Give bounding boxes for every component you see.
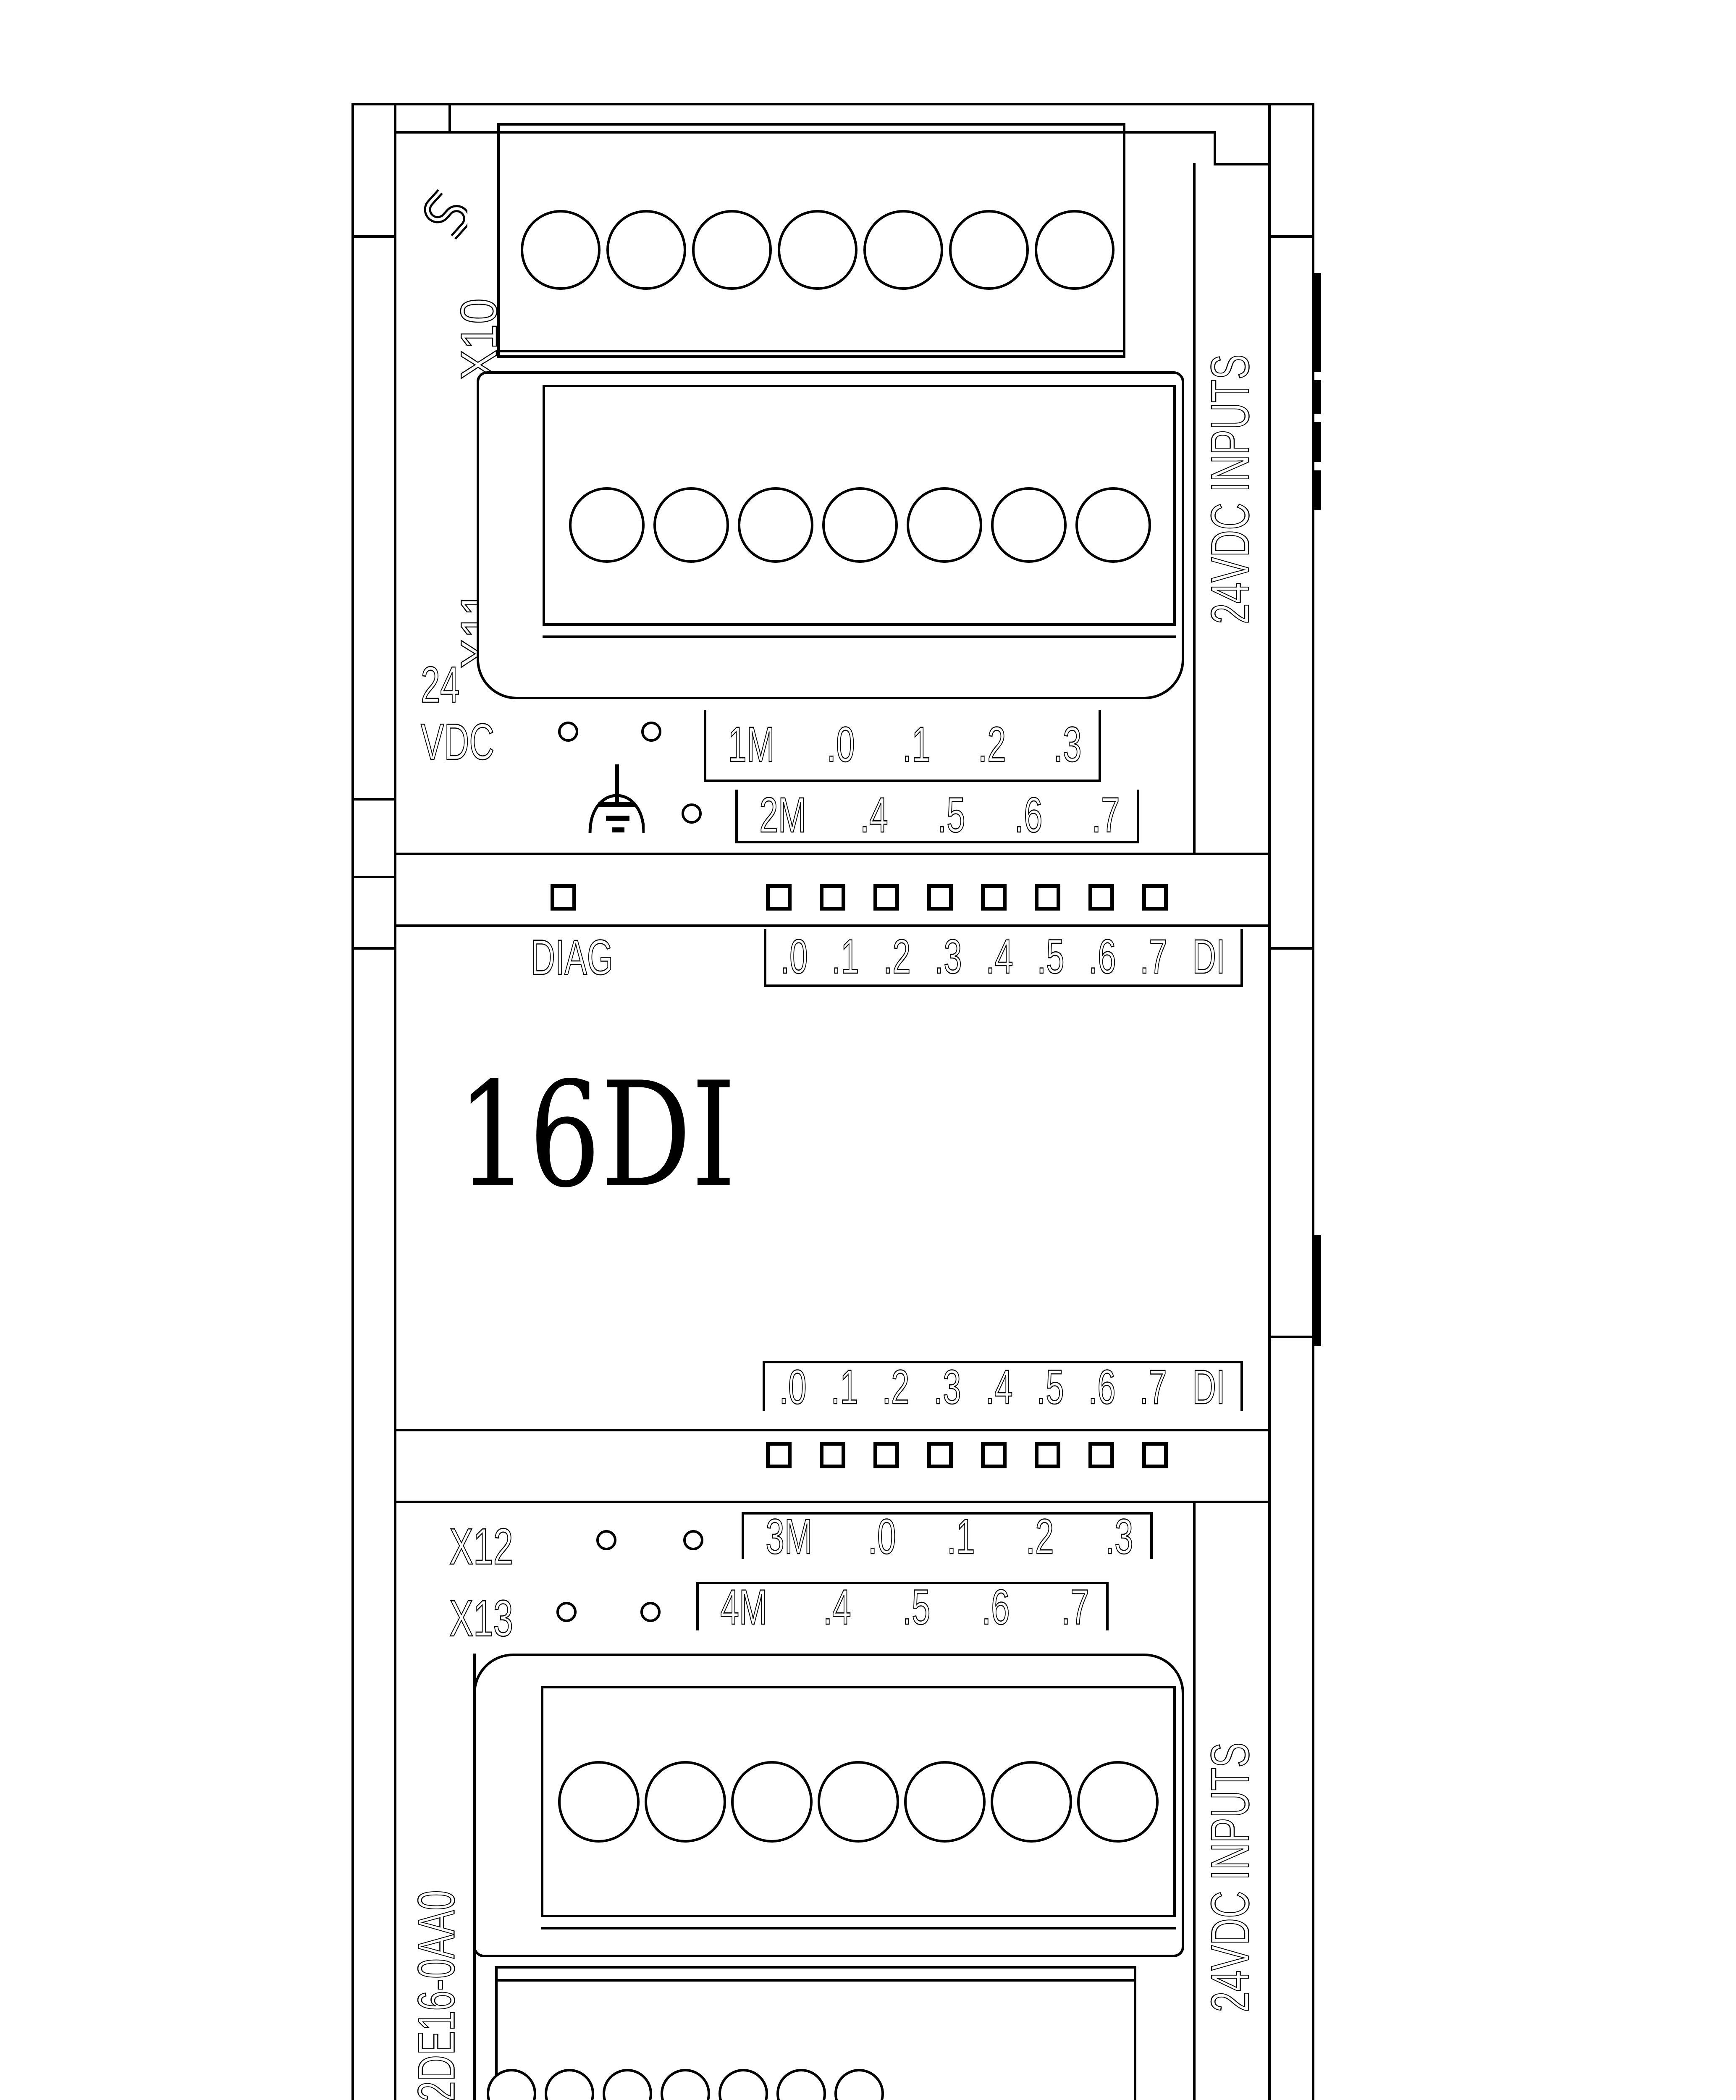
wiring-label: .1 bbox=[902, 716, 930, 773]
terminal-circle bbox=[1077, 1761, 1159, 1843]
di-group-label: DI bbox=[1192, 1360, 1225, 1415]
input-led bbox=[981, 884, 1007, 911]
terminal-circle bbox=[719, 2069, 768, 2100]
terminal-circle bbox=[731, 1761, 813, 1843]
di-label-row-top: .0 .1 .2 .3 .4 .5 .6 .7 DI bbox=[764, 929, 1243, 987]
di-bit-label: .5 bbox=[1036, 1360, 1064, 1415]
input-led bbox=[1142, 884, 1168, 911]
di-bit-label: .2 bbox=[883, 929, 910, 984]
left-rail bbox=[351, 103, 396, 2100]
wiring-label: .3 bbox=[1053, 716, 1081, 773]
terminal-circle bbox=[1075, 487, 1151, 563]
di-bit-label: .2 bbox=[882, 1360, 910, 1415]
terminal-circle bbox=[818, 1761, 899, 1843]
side-column-line-top bbox=[1193, 163, 1196, 853]
right-rail bbox=[1268, 103, 1314, 2100]
input-led bbox=[766, 884, 792, 911]
wiring-bracket-1m: 1M .0 .1 .2 .3 bbox=[704, 710, 1101, 782]
terminal-block-x13-inner-line bbox=[495, 1979, 1136, 1982]
left-rail-division bbox=[351, 947, 396, 950]
input-led bbox=[873, 1442, 899, 1468]
indicator-circle bbox=[683, 1530, 703, 1550]
terminal-circle bbox=[778, 210, 858, 290]
terminal-circle bbox=[991, 1761, 1072, 1843]
divider-line bbox=[396, 1429, 1268, 1431]
order-number-label: 288-2DE16-0AA0 bbox=[407, 1890, 467, 2100]
indicator-circle bbox=[596, 1530, 616, 1550]
terminal-circle bbox=[653, 487, 729, 563]
di-bit-label: .7 bbox=[1140, 1360, 1167, 1415]
wiring-bracket-4m: 4M .4 .5 .6 .7 bbox=[696, 1582, 1109, 1630]
terminal-circle bbox=[606, 210, 686, 290]
wiring-bracket-2m: 2M .4 .5 .6 .7 bbox=[735, 790, 1139, 843]
wiring-label: .7 bbox=[1061, 1579, 1089, 1636]
terminal-circle bbox=[834, 2069, 884, 2100]
left-rail-division bbox=[351, 798, 396, 801]
input-led bbox=[820, 1442, 845, 1468]
di-label-row-bottom: .0 .1 .2 .3 .4 .5 .6 .7 DI bbox=[763, 1361, 1243, 1411]
side-label-24vdc-inputs-bottom: 24VDC INPUTS bbox=[1200, 1743, 1261, 2012]
di-bit-label: .4 bbox=[986, 929, 1013, 984]
di-bit-label: .3 bbox=[934, 929, 962, 984]
terminal-block-x10-inner-line-bottom bbox=[497, 350, 1125, 352]
power-label-24: 24 bbox=[421, 655, 459, 714]
divider-line bbox=[396, 1501, 1268, 1503]
wiring-label: .6 bbox=[981, 1579, 1010, 1636]
input-led bbox=[820, 884, 845, 911]
terminal-circle bbox=[822, 487, 898, 563]
label-x10: X10 bbox=[449, 298, 508, 380]
left-rail-division bbox=[351, 235, 396, 238]
wiring-label: .4 bbox=[860, 787, 888, 844]
top-right-step bbox=[1214, 131, 1216, 163]
wiring-label: .4 bbox=[823, 1579, 851, 1636]
terminal-block-x11-inner-line bbox=[543, 635, 1176, 638]
wiring-bracket-3m: 3M .0 .1 .2 .3 bbox=[742, 1512, 1153, 1559]
di-bit-label: .0 bbox=[780, 929, 808, 984]
terminal-circle bbox=[949, 210, 1029, 290]
right-rail-division bbox=[1268, 1336, 1314, 1338]
di-bit-label: .7 bbox=[1140, 929, 1167, 984]
di-bit-label: .1 bbox=[832, 929, 859, 984]
top-left-step bbox=[448, 103, 451, 131]
input-led bbox=[927, 884, 953, 911]
divider-line bbox=[396, 924, 1268, 927]
indicator-circle bbox=[682, 803, 702, 824]
side-column-line-bottom bbox=[1193, 1501, 1196, 2100]
terminal-circle bbox=[692, 210, 772, 290]
terminal-circle bbox=[1035, 210, 1115, 290]
terminal-circle bbox=[569, 487, 645, 563]
terminal-block-x12-inner-line bbox=[541, 1927, 1176, 1929]
bus-tab bbox=[1314, 470, 1321, 510]
input-led-row-top bbox=[766, 884, 1168, 911]
wiring-label: .0 bbox=[826, 716, 855, 773]
wiring-label: 4M bbox=[720, 1579, 767, 1636]
di-bit-label: .0 bbox=[779, 1360, 806, 1415]
product-title-16di: 16DI bbox=[457, 1063, 736, 1208]
input-led bbox=[1035, 884, 1060, 911]
label-x12: X12 bbox=[449, 1517, 513, 1576]
bus-tab bbox=[1314, 1235, 1321, 1346]
terminal-circle bbox=[907, 487, 982, 563]
terminal-row-x12 bbox=[558, 1761, 1159, 1843]
terminal-circle bbox=[776, 2069, 826, 2100]
input-led-row-bottom bbox=[766, 1442, 1168, 1468]
indicator-circle bbox=[640, 1602, 661, 1622]
terminal-circle bbox=[603, 2069, 652, 2100]
bus-tab bbox=[1314, 422, 1321, 462]
di-bit-label: .4 bbox=[985, 1360, 1012, 1415]
input-led bbox=[1088, 884, 1114, 911]
wiring-label: 1M bbox=[728, 716, 774, 773]
input-led bbox=[1088, 1442, 1114, 1468]
diag-led bbox=[551, 884, 576, 911]
drawing-canvas: X10 X11 24VDC INPUTS 24 VDC 1M .0 .1 .2 … bbox=[0, 0, 1736, 2100]
wiring-label: 2M bbox=[759, 787, 806, 844]
wiring-label: .3 bbox=[1105, 1508, 1133, 1565]
di-bit-label: .5 bbox=[1037, 929, 1065, 984]
terminal-row-x13 bbox=[487, 2069, 884, 2100]
input-led bbox=[1142, 1442, 1168, 1468]
indicator-circle bbox=[558, 722, 578, 742]
terminal-circle bbox=[991, 487, 1067, 563]
wiring-label: .2 bbox=[1026, 1508, 1054, 1565]
siemens-clip-logo-icon bbox=[423, 174, 467, 258]
terminal-circle bbox=[545, 2069, 594, 2100]
side-label-24vdc-inputs-top: 24VDC INPUTS bbox=[1200, 354, 1261, 624]
bus-tab bbox=[1314, 273, 1321, 372]
right-rail-division bbox=[1268, 235, 1314, 238]
terminal-row-x10 bbox=[521, 210, 1115, 290]
terminal-circle bbox=[904, 1761, 986, 1843]
wiring-label: .2 bbox=[978, 716, 1006, 773]
di-bit-label: .3 bbox=[934, 1360, 961, 1415]
di-bit-label: .6 bbox=[1088, 929, 1116, 984]
input-led bbox=[1035, 1442, 1060, 1468]
di-group-label: DI bbox=[1192, 929, 1225, 984]
wiring-label: .7 bbox=[1091, 787, 1120, 844]
terminal-circle bbox=[558, 1761, 640, 1843]
di-bit-label: .6 bbox=[1088, 1360, 1115, 1415]
label-diag: DIAG bbox=[531, 929, 613, 986]
wiring-label: .5 bbox=[937, 787, 965, 844]
terminal-block-x10-inner-line-top bbox=[497, 131, 1125, 134]
terminal-circle bbox=[487, 2069, 536, 2100]
bus-tab bbox=[1314, 380, 1321, 414]
terminal-circle bbox=[645, 1761, 726, 1843]
power-label-vdc: VDC bbox=[421, 712, 494, 771]
module-top-edge bbox=[351, 103, 1314, 105]
terminal-row-x11 bbox=[569, 487, 1151, 563]
label-x13: X13 bbox=[449, 1589, 513, 1648]
functional-earth-icon bbox=[586, 761, 645, 841]
input-led bbox=[981, 1442, 1007, 1468]
wiring-label: .5 bbox=[902, 1579, 930, 1636]
input-led bbox=[766, 1442, 792, 1468]
indicator-circle bbox=[556, 1602, 577, 1622]
di-bit-label: .1 bbox=[831, 1360, 858, 1415]
right-rail-division bbox=[1268, 947, 1314, 950]
left-rail-division bbox=[351, 876, 396, 878]
wiring-label: 3M bbox=[766, 1508, 812, 1565]
wiring-label: .6 bbox=[1014, 787, 1042, 844]
terminal-circle bbox=[661, 2069, 710, 2100]
input-led bbox=[927, 1442, 953, 1468]
divider-line bbox=[396, 853, 1268, 855]
terminal-circle bbox=[738, 487, 813, 563]
terminal-circle bbox=[521, 210, 601, 290]
indicator-circle bbox=[641, 722, 661, 742]
top-right-step-line bbox=[1214, 163, 1268, 165]
input-led bbox=[873, 884, 899, 911]
wiring-label: .0 bbox=[868, 1508, 896, 1565]
terminal-circle bbox=[863, 210, 943, 290]
wiring-label: .1 bbox=[947, 1508, 975, 1565]
